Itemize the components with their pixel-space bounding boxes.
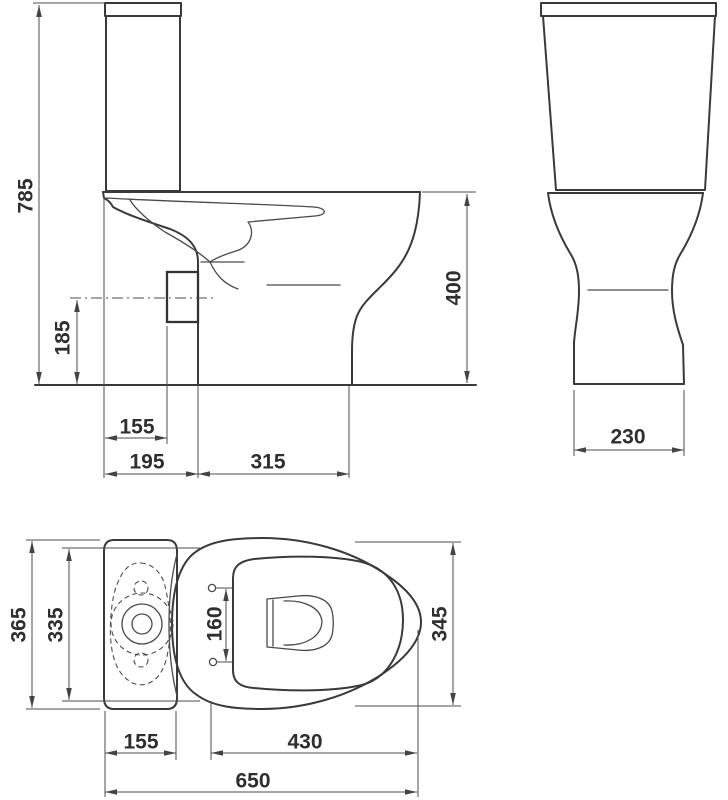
plan-dimension-lines bbox=[26, 540, 461, 797]
plan-view: 365 335 160 345 155 430 650 bbox=[8, 538, 462, 797]
front-cistern-lid bbox=[541, 3, 716, 16]
dim-label-bowl-length: 430 bbox=[287, 731, 322, 754]
dim-label-bowl-width: 345 bbox=[429, 606, 452, 641]
side-dimension-arrows bbox=[36, 5, 470, 477]
side-dimension-lines bbox=[33, 3, 476, 478]
dim-label-body-width: 335 bbox=[45, 607, 68, 642]
plan-bolt-hidden-bottom bbox=[134, 653, 148, 667]
plan-drain-opening-outer bbox=[267, 596, 333, 651]
dim-label-seat-hole-spacing: 160 bbox=[204, 606, 227, 641]
dim-label-cistern-width: 365 bbox=[8, 607, 31, 642]
side-cistern-lid bbox=[105, 3, 181, 16]
plan-seat-hole-top bbox=[208, 584, 215, 591]
dim-label-overall-depth: 650 bbox=[235, 770, 270, 793]
dim-label-overall-height: 785 bbox=[15, 178, 38, 213]
dim-label-base-width: 230 bbox=[610, 426, 645, 449]
toilet-dimension-drawing: 785 185 155 195 315 400 230 bbox=[0, 0, 728, 800]
side-view: 785 185 155 195 315 400 bbox=[15, 3, 477, 478]
side-cistern-body bbox=[106, 16, 180, 191]
dim-label-rim-height: 400 bbox=[443, 270, 466, 305]
side-bowl-front-outline bbox=[352, 192, 420, 385]
plan-mechanism-hidden-circle bbox=[111, 593, 173, 655]
plan-flush-valve-inner bbox=[132, 614, 152, 634]
front-view: 230 bbox=[541, 3, 716, 456]
plan-seat-outline bbox=[233, 557, 403, 691]
plan-cistern-outline bbox=[104, 540, 177, 709]
dim-label-outlet-height: 185 bbox=[52, 320, 75, 355]
dim-label-cistern-depth: 155 bbox=[123, 731, 158, 754]
dim-label-wall-to-outlet: 155 bbox=[119, 416, 154, 439]
front-bowl-right-outline bbox=[672, 193, 703, 384]
plan-drain-opening-inner bbox=[284, 601, 322, 645]
dim-label-wall-to-base: 195 bbox=[129, 451, 164, 474]
plan-seat-hole-bottom bbox=[209, 658, 216, 665]
side-outlet-pipe bbox=[167, 272, 198, 322]
technical-drawing-page: 785 185 155 195 315 400 230 bbox=[0, 0, 728, 800]
side-sump-line bbox=[210, 262, 238, 289]
front-bowl-left-outline bbox=[548, 193, 579, 384]
dim-label-base-length: 315 bbox=[250, 451, 285, 474]
front-cistern-body bbox=[543, 16, 715, 190]
side-flush-channel-section bbox=[106, 198, 324, 262]
plan-flush-valve-outer bbox=[122, 604, 162, 644]
